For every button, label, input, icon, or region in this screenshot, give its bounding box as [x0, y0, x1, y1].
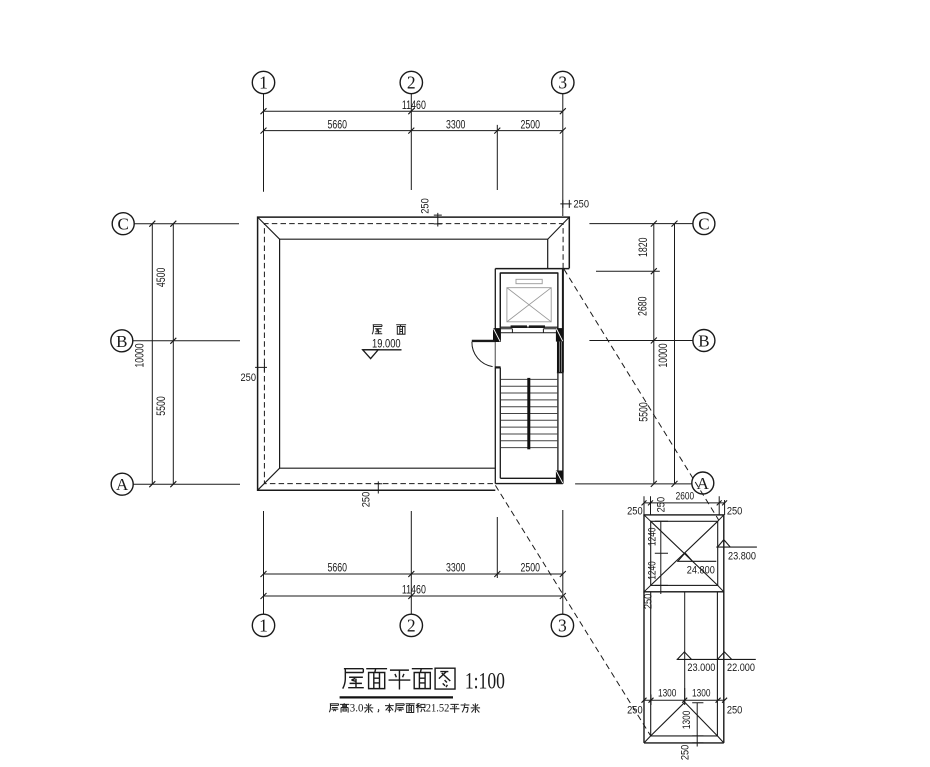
svg-text:A: A [116, 475, 129, 494]
svg-text:250: 250 [627, 505, 643, 517]
svg-text:250: 250 [241, 372, 257, 384]
svg-text:1300: 1300 [681, 711, 693, 730]
svg-text:1300: 1300 [658, 688, 677, 700]
svg-text:23.000: 23.000 [687, 662, 715, 674]
svg-text:C: C [698, 215, 709, 234]
svg-text:11460: 11460 [402, 98, 426, 112]
svg-text:2680: 2680 [636, 296, 650, 316]
svg-text:A: A [697, 474, 710, 493]
svg-text:250: 250 [574, 199, 590, 211]
svg-text:1: 1 [259, 73, 268, 93]
svg-text:250: 250 [420, 198, 432, 214]
svg-text:250: 250 [361, 492, 373, 508]
svg-text:3: 3 [558, 73, 567, 93]
svg-text:5500: 5500 [636, 402, 650, 422]
svg-text:1820: 1820 [636, 237, 650, 257]
svg-text:1240: 1240 [646, 528, 658, 547]
svg-text:250: 250 [655, 497, 667, 512]
svg-text:2: 2 [407, 73, 416, 93]
svg-text:C: C [118, 215, 129, 234]
svg-text:250: 250 [727, 505, 743, 517]
svg-text:5500: 5500 [154, 396, 168, 416]
svg-text:19.000: 19.000 [372, 337, 401, 351]
svg-text:3: 3 [558, 616, 567, 636]
svg-text:1: 1 [259, 616, 268, 636]
svg-text:11460: 11460 [402, 582, 426, 596]
svg-text:10000: 10000 [133, 343, 147, 367]
svg-text:2500: 2500 [521, 117, 541, 131]
svg-text:5660: 5660 [328, 117, 348, 131]
svg-text:22.000: 22.000 [727, 662, 755, 674]
svg-text:3300: 3300 [446, 117, 466, 131]
svg-text:2600: 2600 [676, 491, 695, 503]
svg-text:5660: 5660 [328, 560, 348, 574]
svg-text:2500: 2500 [521, 560, 541, 574]
svg-text:1240: 1240 [646, 561, 658, 580]
svg-text:250: 250 [627, 704, 643, 716]
svg-text:4500: 4500 [154, 267, 168, 287]
svg-text:23.800: 23.800 [728, 550, 756, 562]
svg-text:21.52: 21.52 [426, 701, 450, 715]
svg-text:250: 250 [679, 745, 691, 761]
svg-text:2: 2 [407, 616, 416, 636]
svg-text:1300: 1300 [692, 688, 711, 700]
svg-text:24.800: 24.800 [687, 564, 715, 576]
svg-text:1:100: 1:100 [465, 669, 505, 694]
svg-text:3.0: 3.0 [350, 701, 364, 715]
svg-text:B: B [116, 332, 127, 351]
svg-text:10000: 10000 [656, 343, 670, 367]
svg-text:B: B [698, 332, 709, 351]
svg-text:3300: 3300 [446, 560, 466, 574]
svg-text:250: 250 [727, 704, 743, 716]
